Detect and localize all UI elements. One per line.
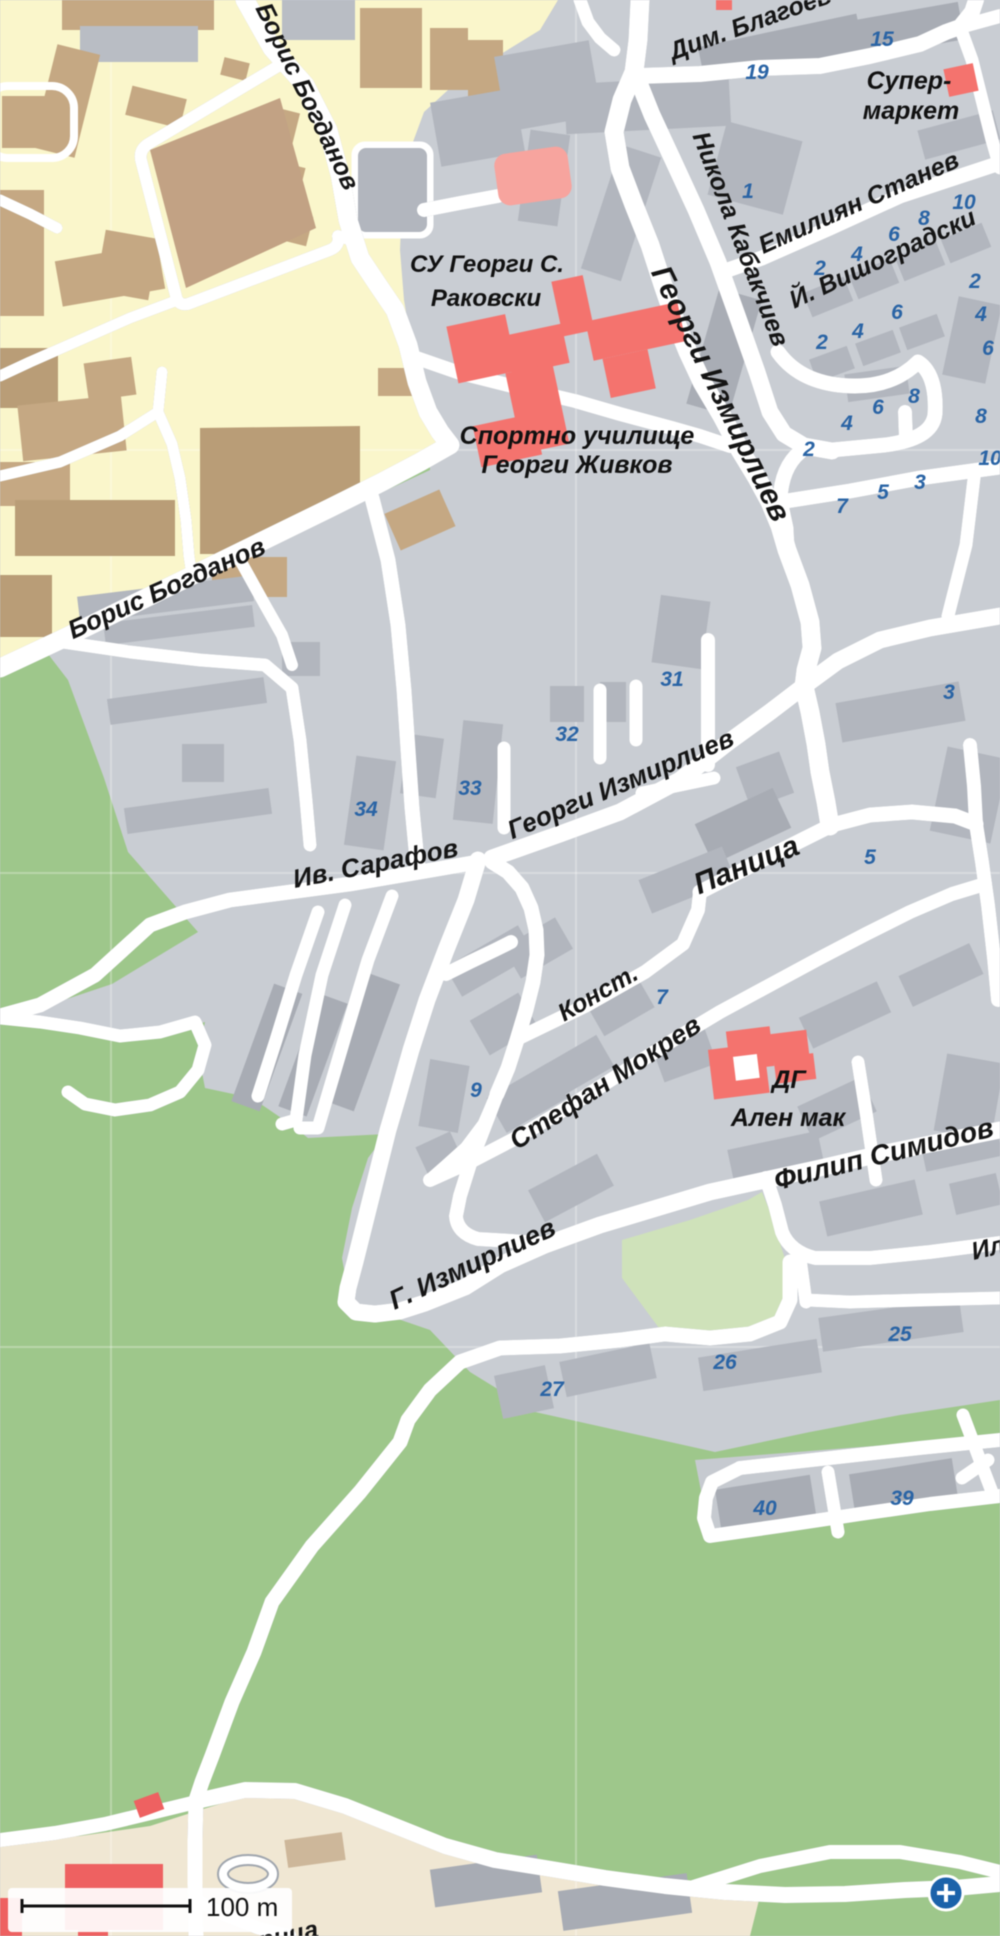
- svg-text:2: 2: [813, 257, 826, 280]
- svg-text:33: 33: [458, 777, 482, 800]
- svg-text:6: 6: [888, 223, 900, 246]
- svg-text:7: 7: [656, 986, 669, 1009]
- svg-text:4: 4: [840, 412, 853, 435]
- svg-text:7: 7: [836, 495, 849, 518]
- svg-text:15: 15: [870, 28, 894, 51]
- svg-text:5: 5: [864, 846, 876, 869]
- svg-text:8: 8: [918, 207, 930, 230]
- svg-text:40: 40: [752, 1497, 777, 1520]
- svg-text:5: 5: [877, 481, 889, 504]
- svg-text:9: 9: [470, 1079, 482, 1102]
- svg-text:34: 34: [354, 798, 378, 821]
- svg-text:6: 6: [872, 396, 884, 419]
- svg-text:31: 31: [660, 668, 683, 691]
- svg-text:3: 3: [914, 471, 926, 494]
- svg-text:маркет: маркет: [863, 97, 959, 125]
- svg-text:32: 32: [555, 723, 579, 746]
- svg-text:Раковски: Раковски: [431, 285, 542, 312]
- svg-text:10: 10: [952, 191, 976, 214]
- svg-text:8: 8: [975, 405, 987, 428]
- svg-text:100 m: 100 m: [206, 1892, 278, 1922]
- svg-text:Георги Живков: Георги Живков: [481, 451, 672, 479]
- svg-text:Ален мак: Ален мак: [730, 1104, 847, 1132]
- svg-text:2: 2: [968, 270, 981, 293]
- svg-text:19: 19: [745, 61, 769, 84]
- svg-text:4: 4: [974, 303, 987, 326]
- svg-text:25: 25: [887, 1323, 912, 1346]
- svg-text:3: 3: [943, 681, 955, 704]
- svg-text:ДГ: ДГ: [770, 1066, 807, 1094]
- svg-text:6: 6: [982, 337, 994, 360]
- svg-text:6: 6: [891, 301, 903, 324]
- svg-text:10: 10: [978, 447, 1000, 470]
- svg-text:Спортно училище: Спортно училище: [460, 422, 695, 450]
- svg-text:1: 1: [742, 180, 754, 203]
- svg-text:СУ Георги С.: СУ Георги С.: [410, 251, 564, 278]
- svg-text:39: 39: [890, 1487, 914, 1510]
- svg-text:26: 26: [712, 1351, 737, 1374]
- svg-text:Супер-: Супер-: [867, 67, 952, 95]
- svg-text:2: 2: [802, 438, 815, 461]
- svg-text:2: 2: [815, 331, 828, 354]
- svg-text:8: 8: [908, 385, 920, 408]
- svg-text:27: 27: [539, 1378, 565, 1401]
- svg-text:4: 4: [850, 243, 863, 266]
- svg-text:4: 4: [851, 320, 864, 343]
